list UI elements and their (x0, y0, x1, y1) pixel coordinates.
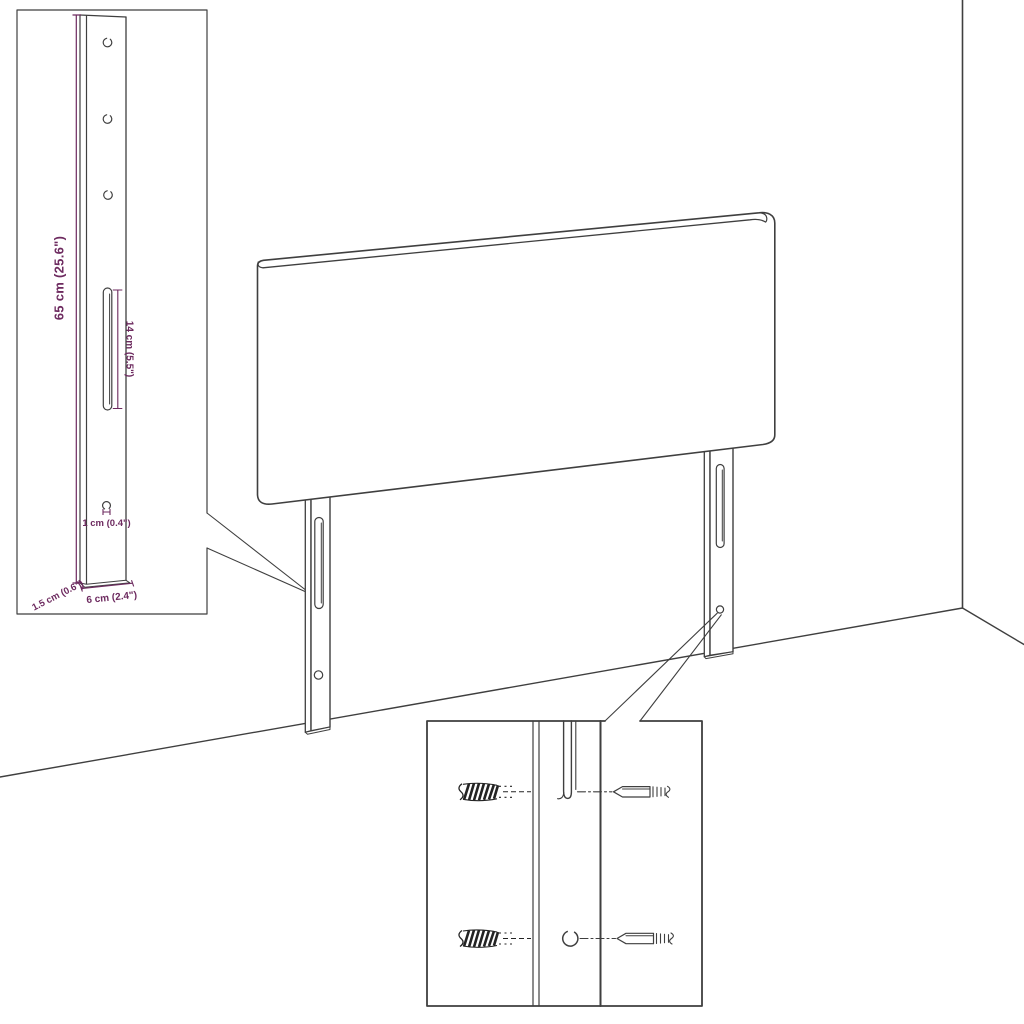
left-leg-screw-hole (314, 671, 322, 679)
screw-inset (427, 721, 702, 1006)
headboard-assembly-diagram: 65 cm (25.6") 14 cm (5.5") 1 cm (0.4") 6… (0, 0, 1024, 1024)
floor-line-right (963, 608, 1024, 645)
dimension-hole-label: 1 cm (0.4") (82, 518, 130, 529)
dimension-slot-label: 14 cm (5.5") (124, 321, 135, 377)
left-leg-slot (315, 518, 323, 609)
right-leg-screw-hole (716, 606, 723, 613)
headboard-leg-left (305, 488, 330, 734)
headboard-diagram-page: 65 cm (25.6") 14 cm (5.5") 1 cm (0.4") 6… (0, 0, 1024, 1024)
bracket-callout-pointer (207, 513, 305, 592)
dimension-height-label: 65 cm (25.6") (52, 236, 67, 321)
panel-front-face (258, 213, 775, 505)
left-leg-side-face (305, 490, 311, 732)
headboard-leg-right (704, 441, 733, 659)
bracket-inset: 65 cm (25.6") 14 cm (5.5") 1 cm (0.4") 6… (17, 10, 207, 614)
screw-inset-box (427, 721, 702, 1006)
right-leg-slot (716, 465, 724, 548)
headboard-panel (258, 213, 775, 505)
